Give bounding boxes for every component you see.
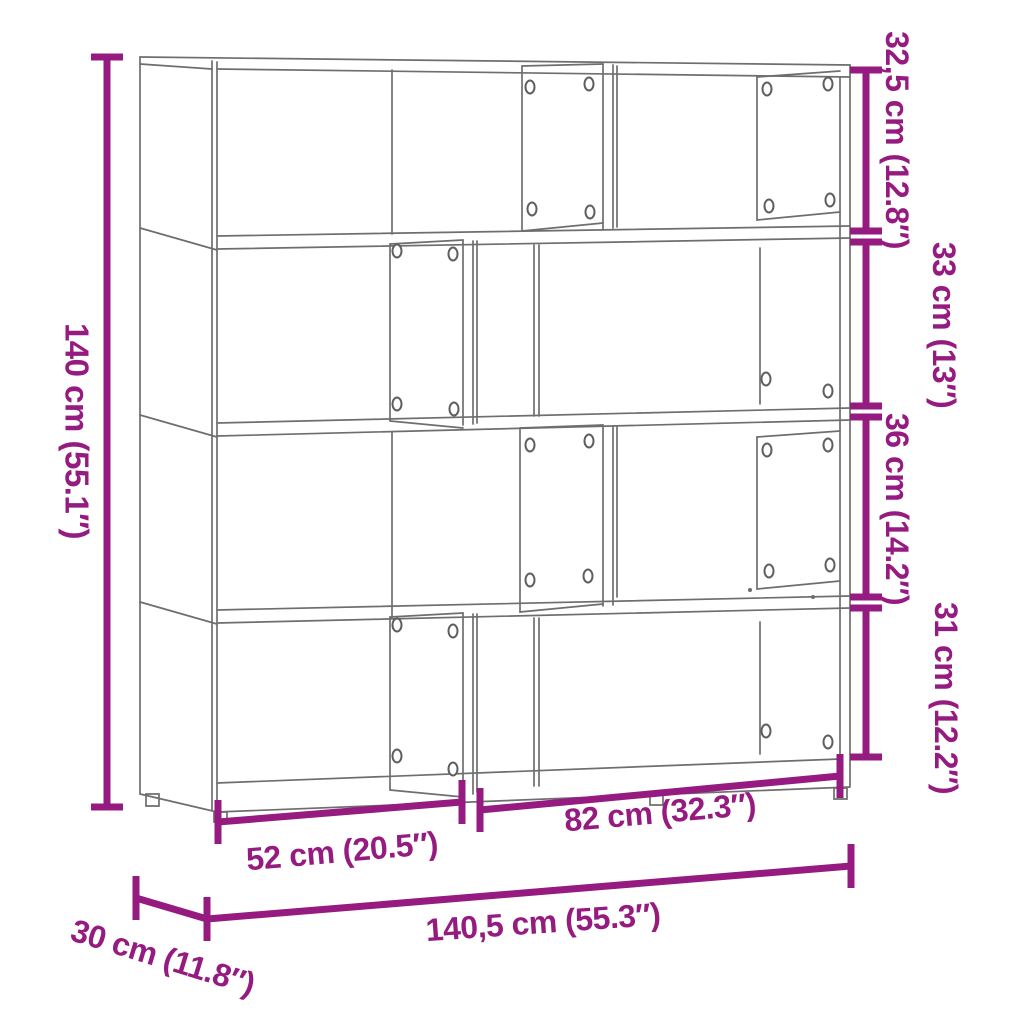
bookcase-line-drawing xyxy=(140,57,850,822)
tier3-height-label: 36 cm (14.2″) xyxy=(881,413,913,605)
tier2-compartments xyxy=(390,240,833,428)
tier3-compartments xyxy=(392,425,840,618)
height-dimension-line xyxy=(91,57,123,807)
tier1-compartments xyxy=(392,64,840,234)
tier2-height-label: 33 cm (13″) xyxy=(928,242,960,408)
height-dimension-label: 140 cm (55.1″) xyxy=(61,323,94,539)
depth-dimension-line xyxy=(136,876,207,920)
product-dimension-diagram: 140 cm (55.1″) 32,5 cm (12.8″) 33 cm (13… xyxy=(0,0,1024,1024)
tier4-height-label: 31 cm (12.2″) xyxy=(930,602,962,794)
dimension-annotations xyxy=(91,57,882,941)
tier4-compartments xyxy=(390,613,833,797)
tier-heights-dimension-chain xyxy=(850,70,882,757)
tier1-height-label: 32,5 cm (12.8″) xyxy=(881,31,913,249)
diagram-canvas xyxy=(0,0,1024,1024)
